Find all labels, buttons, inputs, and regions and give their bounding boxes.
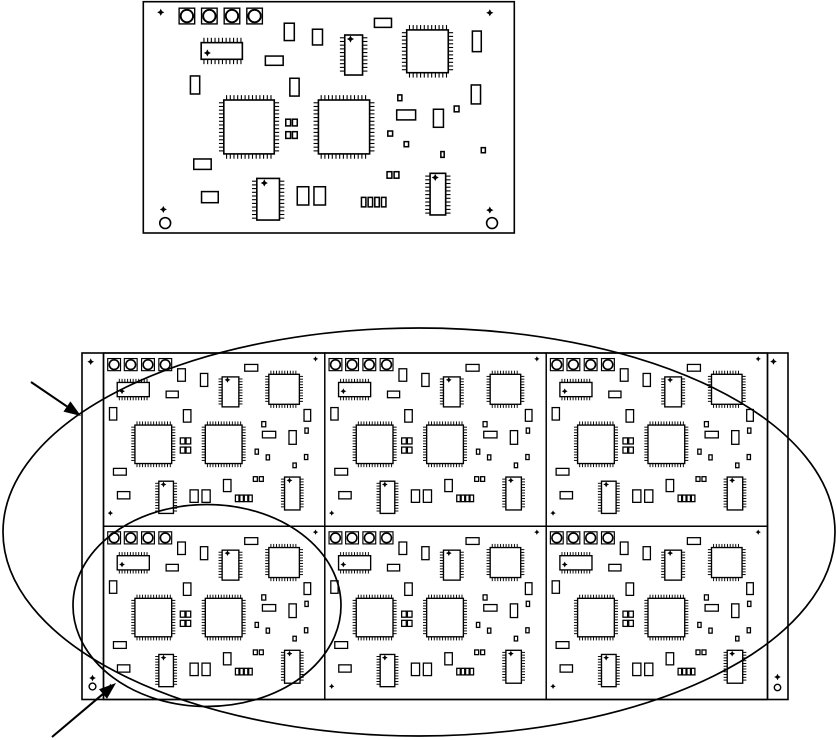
passive-component — [255, 622, 258, 627]
pad-circle — [226, 10, 238, 22]
ic-body — [257, 178, 280, 220]
ic-soic — [201, 38, 242, 64]
passive-component — [441, 152, 444, 158]
passive-component — [240, 495, 244, 502]
passive-component — [747, 455, 750, 460]
ic-qfp — [487, 371, 525, 408]
ic-qfp — [708, 544, 746, 581]
arrow-shaft — [52, 694, 103, 737]
passive-component — [422, 373, 429, 386]
ic-body — [712, 548, 743, 578]
ic-soic — [560, 379, 592, 400]
passive-component — [374, 18, 391, 27]
passive-component — [289, 431, 296, 445]
passive-component — [461, 495, 465, 502]
passive-component — [240, 668, 244, 675]
mounting-pad — [329, 359, 342, 371]
passive-component — [702, 477, 706, 482]
pad-circle — [364, 533, 374, 543]
passive-component — [314, 187, 326, 205]
passive-component — [666, 479, 674, 491]
passive-component — [510, 431, 517, 445]
passive-component — [297, 187, 309, 205]
passive-component — [691, 668, 695, 675]
ic-qfp — [487, 544, 525, 581]
ic-body — [205, 598, 242, 636]
passive-component — [461, 668, 465, 675]
ic-body — [648, 598, 685, 636]
passive-component — [387, 564, 399, 571]
passive-component — [691, 495, 695, 502]
passive-component — [483, 595, 487, 600]
passive-component — [623, 438, 628, 444]
pcb-panel-drawing — [82, 353, 788, 700]
passive-component — [556, 468, 569, 475]
passive-component — [709, 455, 712, 460]
ic-soic — [377, 654, 399, 686]
arrow-shaft — [31, 382, 67, 406]
passive-component — [481, 148, 485, 153]
passive-component — [483, 422, 487, 427]
passive-component — [748, 601, 751, 606]
rail-tooling-hole — [774, 684, 780, 690]
rail-fiducial-mark — [770, 358, 777, 365]
ic-body — [222, 377, 239, 407]
passive-component — [466, 538, 479, 545]
passive-component — [180, 620, 185, 626]
passive-component — [698, 622, 701, 627]
passive-component — [113, 468, 126, 475]
ic-body — [506, 650, 521, 683]
passive-component — [466, 495, 470, 502]
passive-component — [407, 611, 412, 617]
passive-component — [445, 479, 453, 491]
panel-board-r1c3 — [546, 353, 767, 526]
passive-component — [244, 495, 248, 502]
passive-component — [331, 408, 338, 420]
passive-component — [202, 663, 210, 675]
ic-soic — [340, 35, 368, 75]
passive-component — [481, 477, 485, 482]
passive-component — [678, 668, 682, 675]
ic-body — [665, 550, 682, 580]
passive-component — [190, 490, 198, 502]
passive-component — [411, 490, 419, 502]
tooling-hole — [160, 218, 171, 229]
passive-component — [626, 583, 634, 595]
ic-body — [356, 598, 393, 636]
pcb-panelization-figure — [0, 0, 836, 740]
ic-body — [427, 425, 464, 463]
ic-qfp — [644, 595, 688, 641]
passive-component — [402, 438, 407, 444]
passive-component — [620, 369, 628, 381]
passive-component — [255, 449, 258, 454]
ic-soic — [661, 550, 685, 580]
mounting-pad — [329, 532, 342, 544]
pad-circle — [126, 533, 136, 543]
passive-component — [402, 447, 407, 453]
pad-circle — [603, 533, 613, 543]
mounting-pad — [108, 359, 121, 371]
passive-component — [457, 668, 461, 675]
ic-soic — [440, 550, 464, 580]
passive-component — [166, 564, 178, 571]
passive-component — [484, 431, 497, 438]
passive-component — [552, 408, 559, 420]
passive-component — [305, 428, 308, 433]
passive-component — [286, 119, 291, 126]
passive-component — [433, 109, 443, 127]
passive-component — [623, 447, 628, 453]
ic-qfp — [402, 25, 453, 78]
passive-component — [626, 410, 634, 422]
passive-component — [186, 447, 191, 453]
panel-board-r2c1 — [104, 526, 325, 699]
passive-component — [194, 159, 211, 169]
passive-component — [200, 373, 207, 386]
passive-component — [633, 490, 641, 502]
ic-body — [356, 425, 393, 463]
passive-component — [705, 605, 718, 612]
passive-component — [178, 542, 186, 554]
ic-body — [135, 598, 172, 636]
ic-soic — [377, 481, 399, 513]
passive-component — [683, 495, 687, 502]
passive-component — [186, 611, 191, 617]
ic-soic — [252, 178, 284, 220]
ic-body — [269, 374, 300, 404]
ic-soic — [661, 377, 685, 407]
passive-component — [186, 620, 191, 626]
passive-component — [190, 76, 199, 94]
ic-body — [727, 650, 742, 683]
passive-component — [335, 642, 348, 649]
passive-component — [117, 665, 129, 672]
ic-body — [269, 548, 300, 578]
passive-component — [223, 479, 231, 491]
ic-body — [602, 481, 617, 513]
ic-qfp — [574, 595, 618, 641]
passive-component — [259, 650, 263, 655]
mounting-pad — [202, 8, 218, 24]
passive-component — [704, 595, 708, 600]
ic-qfp — [423, 421, 467, 467]
ic-soic — [598, 481, 620, 513]
passive-component — [556, 642, 569, 649]
pad-circle — [181, 10, 193, 22]
passive-component — [312, 29, 322, 45]
ic-body — [648, 425, 685, 463]
ic-body — [222, 550, 239, 580]
passive-component — [394, 172, 399, 178]
passive-component — [525, 583, 532, 595]
passive-component — [109, 408, 116, 420]
ic-body — [318, 100, 369, 154]
pad-circle — [109, 360, 119, 370]
mounting-pad — [380, 532, 393, 544]
passive-component — [560, 492, 572, 499]
ic-soic — [339, 552, 371, 573]
ic-qfp — [265, 371, 303, 408]
passive-component — [405, 410, 413, 422]
passive-component — [488, 628, 491, 633]
passive-component — [526, 428, 529, 433]
passive-component — [289, 604, 296, 618]
passive-component — [407, 620, 412, 626]
passive-component — [629, 620, 634, 626]
passive-component — [117, 492, 129, 499]
tooling-hole — [487, 218, 498, 229]
mounting-pad — [550, 359, 563, 371]
passive-component — [422, 547, 429, 560]
passive-component — [620, 542, 628, 554]
passive-component — [388, 131, 393, 136]
mounting-pad — [124, 359, 137, 371]
ic-body — [224, 100, 274, 154]
passive-component — [481, 650, 485, 655]
ic-body — [205, 425, 242, 463]
passive-component — [387, 391, 399, 398]
pad-circle — [586, 360, 596, 370]
passive-component — [678, 495, 682, 502]
ic-body — [443, 377, 460, 407]
passive-component — [643, 373, 650, 386]
passive-component — [113, 642, 126, 649]
fiducial-mark — [550, 684, 555, 689]
rail-fiducial-mark — [774, 674, 781, 681]
ic-body — [443, 550, 460, 580]
ic-body — [727, 477, 742, 510]
pad-circle — [143, 360, 153, 370]
passive-component — [200, 547, 207, 560]
passive-component — [732, 604, 739, 618]
passive-component — [687, 495, 691, 502]
leader-arrow-2 — [52, 683, 116, 737]
passive-component — [748, 428, 751, 433]
ic-body — [430, 173, 446, 215]
passive-component — [645, 490, 653, 502]
passive-component — [402, 611, 407, 617]
ic-soic — [425, 173, 450, 215]
passive-component — [645, 663, 653, 675]
passive-component — [262, 431, 275, 438]
passive-component — [629, 611, 634, 617]
mounting-pad — [179, 8, 195, 24]
passive-component — [265, 56, 283, 65]
passive-component — [560, 665, 572, 672]
pad-circle — [347, 360, 357, 370]
passive-component — [407, 447, 412, 453]
fiducial-mark — [157, 9, 164, 16]
passive-component — [292, 119, 297, 126]
passive-component — [423, 663, 431, 675]
pad-circle — [603, 360, 613, 370]
mounting-pad — [363, 532, 376, 544]
passive-component — [411, 663, 419, 675]
ic-soic — [560, 552, 592, 573]
passive-component — [387, 172, 392, 178]
passive-component — [166, 391, 178, 398]
passive-component — [705, 431, 718, 438]
mounting-pad — [363, 359, 376, 371]
passive-component — [404, 142, 408, 147]
passive-component — [525, 409, 532, 421]
passive-component — [609, 564, 621, 571]
passive-component — [552, 581, 559, 593]
passive-component — [262, 422, 266, 427]
passive-component — [526, 628, 529, 633]
ic-qfp — [353, 595, 397, 641]
passive-component — [253, 650, 257, 655]
passive-component — [457, 495, 461, 502]
mounting-pad — [567, 532, 580, 544]
ic-soic — [218, 377, 242, 407]
ic-soic — [155, 654, 177, 686]
passive-component — [266, 455, 269, 460]
passive-component — [178, 369, 186, 381]
pad-circle — [331, 533, 341, 543]
arrow-head-icon — [63, 401, 81, 416]
passive-component — [732, 431, 739, 445]
ic-body — [427, 598, 464, 636]
mounting-pad — [567, 359, 580, 371]
passive-component — [249, 495, 253, 502]
passive-component — [629, 438, 634, 444]
ic-soic — [218, 550, 242, 580]
fiducial-mark — [486, 9, 493, 16]
ic-soic — [724, 477, 747, 510]
fiducial-mark — [486, 207, 493, 214]
leader-arrow-1 — [31, 382, 81, 416]
ic-body — [285, 650, 300, 683]
passive-component — [292, 132, 297, 139]
passive-component — [183, 410, 191, 422]
passive-component — [476, 449, 479, 454]
passive-component — [683, 668, 687, 675]
passive-component — [109, 581, 116, 593]
pad-circle — [364, 360, 374, 370]
passive-component — [445, 653, 453, 665]
passive-component — [709, 628, 712, 633]
passive-component — [510, 604, 517, 618]
passive-component — [687, 364, 700, 371]
ic-qfp — [131, 421, 175, 467]
rail-tooling-hole — [89, 683, 96, 690]
passive-component — [466, 668, 470, 675]
passive-component — [475, 650, 479, 655]
passive-component — [266, 628, 269, 633]
mounting-pad — [380, 359, 393, 371]
passive-component — [698, 449, 701, 454]
passive-component — [186, 438, 191, 444]
mounting-pad — [142, 359, 155, 371]
fiducial-mark — [313, 356, 318, 361]
ic-body — [578, 425, 615, 463]
passive-component — [696, 477, 700, 482]
mounting-pad — [247, 8, 263, 24]
passive-component — [526, 455, 529, 460]
passive-component — [339, 492, 351, 499]
pad-circle — [382, 533, 392, 543]
ic-body — [490, 374, 521, 404]
mounting-pad — [346, 359, 359, 371]
panel-board-r2c3 — [546, 526, 767, 699]
passive-component — [202, 192, 219, 203]
pad-circle — [331, 360, 341, 370]
ic-qfp — [314, 95, 375, 159]
pad-circle — [552, 533, 562, 543]
mounting-pad — [550, 532, 563, 544]
passive-component — [736, 463, 739, 468]
passive-component — [361, 197, 365, 206]
mounting-pad — [602, 359, 615, 371]
pad-circle — [126, 360, 136, 370]
passive-component — [190, 663, 198, 675]
passive-component — [471, 85, 480, 104]
passive-component — [235, 495, 239, 502]
passive-component — [476, 622, 479, 627]
passive-component — [253, 477, 257, 482]
fiducial-mark — [329, 510, 334, 515]
mounting-pad — [602, 532, 615, 544]
passive-component — [249, 668, 253, 675]
mounting-pad — [142, 532, 155, 544]
passive-component — [304, 409, 311, 421]
mounting-pad — [584, 532, 597, 544]
ic-soic — [502, 650, 525, 683]
passive-component — [666, 653, 674, 665]
fiducial-mark — [534, 529, 539, 534]
fiducial-mark — [160, 206, 167, 213]
passive-component — [514, 463, 517, 468]
passive-component — [375, 197, 379, 206]
passive-component — [407, 438, 412, 444]
passive-component — [339, 665, 351, 672]
passive-component — [423, 490, 431, 502]
passive-component — [335, 468, 348, 475]
single-pcb — [143, 2, 514, 233]
passive-component — [696, 650, 700, 655]
rail-fiducial-mark — [87, 358, 94, 365]
passive-component — [368, 197, 372, 206]
fiducial-mark — [550, 510, 555, 515]
figure-canvas — [0, 0, 836, 740]
ic-qfp — [423, 595, 467, 641]
passive-component — [180, 438, 185, 444]
passive-component — [293, 636, 296, 641]
ic-body — [665, 377, 682, 407]
rail-fiducial-mark — [89, 675, 96, 682]
passive-component — [687, 538, 700, 545]
passive-component — [475, 477, 479, 482]
ic-soic — [339, 379, 371, 400]
pad-circle — [203, 10, 215, 22]
pad-circle — [569, 533, 579, 543]
passive-component — [747, 583, 754, 595]
ic-qfp — [644, 421, 688, 467]
passive-component — [609, 391, 621, 398]
ic-soic — [440, 377, 464, 407]
passive-component — [747, 409, 754, 421]
fiducial-mark — [108, 510, 113, 515]
passive-component — [202, 490, 210, 502]
passive-component — [183, 583, 191, 595]
passive-component — [466, 364, 479, 371]
passive-component — [470, 495, 474, 502]
single-pcb-drawing — [143, 2, 514, 233]
ic-soic — [281, 477, 304, 510]
